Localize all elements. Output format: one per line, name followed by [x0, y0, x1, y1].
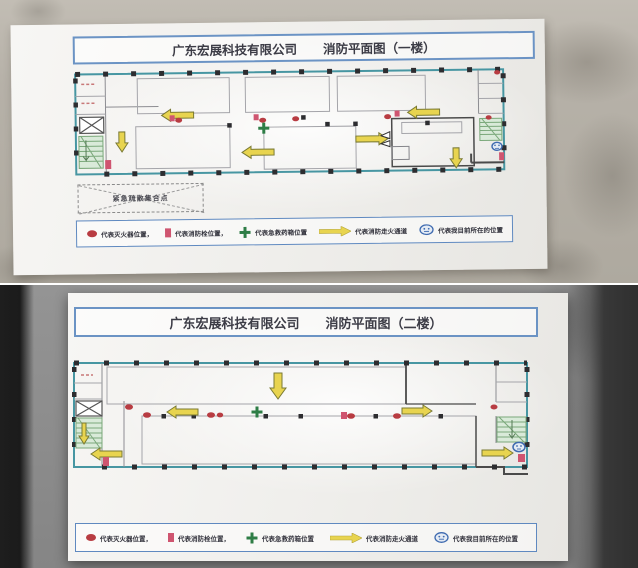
first-aid-icon [246, 532, 258, 544]
floor1-title: 广东宏展科技有限公司消防平面图（一楼） [73, 31, 535, 65]
current-location-marker [513, 442, 525, 451]
current-location-marker [492, 142, 502, 150]
legend-item-extinguisher: 代表灭火器位置， [86, 533, 152, 543]
floor2-plan-name: 消防平面图（二楼） [326, 313, 443, 332]
legend-item-first-aid: 代表急救药箱位置 [246, 532, 314, 544]
escape-arrow-right-upper [402, 405, 432, 417]
legend-item-first-aid: 代表急救药箱位置 [239, 225, 307, 238]
assembly-point-label: 紧急疏散集合点 [113, 193, 169, 204]
fire-hydrant-markers [103, 412, 525, 466]
floor1-legend: 代表灭火器位置， 代表消防栓位置， 代表急救药箱位置 代表消防走火通道 [76, 215, 513, 247]
room-label-marks [81, 84, 94, 103]
escape-route-icon [330, 533, 362, 543]
legend-item-location: 代表我目前所在的位置 [434, 532, 518, 543]
current-location-icon [419, 224, 434, 235]
fire-hydrant-icon [165, 228, 171, 237]
fire-extinguisher-icon [86, 534, 96, 541]
floor1-plan-name: 消防平面图（一楼） [323, 37, 436, 57]
floor2-title: 广东宏展科技有限公司消防平面图（二楼） [74, 307, 538, 337]
escape-arrow-down-2 [450, 148, 462, 168]
escape-arrow-right-lower [482, 447, 513, 459]
fire-hydrant-icon [168, 533, 174, 542]
elevator-icon [76, 401, 102, 416]
escape-arrow-down-1 [116, 132, 128, 152]
legend-item-escape-route: 代表消防走火通道 [319, 225, 407, 236]
first-aid-marker [258, 123, 269, 134]
legend-item-location: 代表我目前所在的位置 [419, 223, 503, 235]
escape-arrow-down-top [270, 373, 286, 399]
elevator-icon [80, 117, 104, 133]
escape-route-arrows [116, 106, 463, 172]
fire-extinguisher-icon [87, 230, 97, 237]
stairs-left-icon [79, 136, 103, 168]
stairs-left-icon [76, 418, 102, 448]
current-location-icon [434, 532, 449, 543]
legend-item-hydrant: 代表消防栓位置， [168, 533, 230, 543]
assembly-point-box: 紧急疏散集合点 [77, 183, 203, 214]
stairs-right-icon [480, 118, 502, 140]
floor2-photo: 广东宏展科技有限公司消防平面图（二楼） [0, 285, 638, 568]
floor2-floorplan [72, 359, 531, 477]
floor2-legend: 代表灭火器位置， 代表消防栓位置， 代表急救药箱位置 代表消防走火通道 [75, 523, 537, 552]
company-name: 广东宏展科技有限公司 [172, 38, 297, 59]
legend-item-escape-route: 代表消防走火通道 [330, 533, 418, 543]
floor1-plan-sheet: 广东宏展科技有限公司消防平面图（一楼） [10, 19, 547, 276]
legend-item-extinguisher: 代表灭火器位置， [87, 228, 153, 239]
escape-route-icon [319, 226, 351, 236]
stairs-right-icon [497, 417, 526, 442]
floor1-floorplan [73, 65, 510, 182]
interior-walls [75, 69, 504, 174]
legend-item-hydrant: 代表消防栓位置， [165, 227, 227, 238]
first-aid-icon [239, 226, 251, 238]
escape-arrow-left-3 [408, 106, 440, 118]
floor1-photo: 广东宏展科技有限公司消防平面图（一楼） [0, 0, 638, 283]
company-name: 广东宏展科技有限公司 [169, 313, 299, 332]
escape-arrow-left-2 [242, 146, 274, 158]
floor2-plan-sheet: 广东宏展科技有限公司消防平面图（二楼） [68, 293, 568, 561]
